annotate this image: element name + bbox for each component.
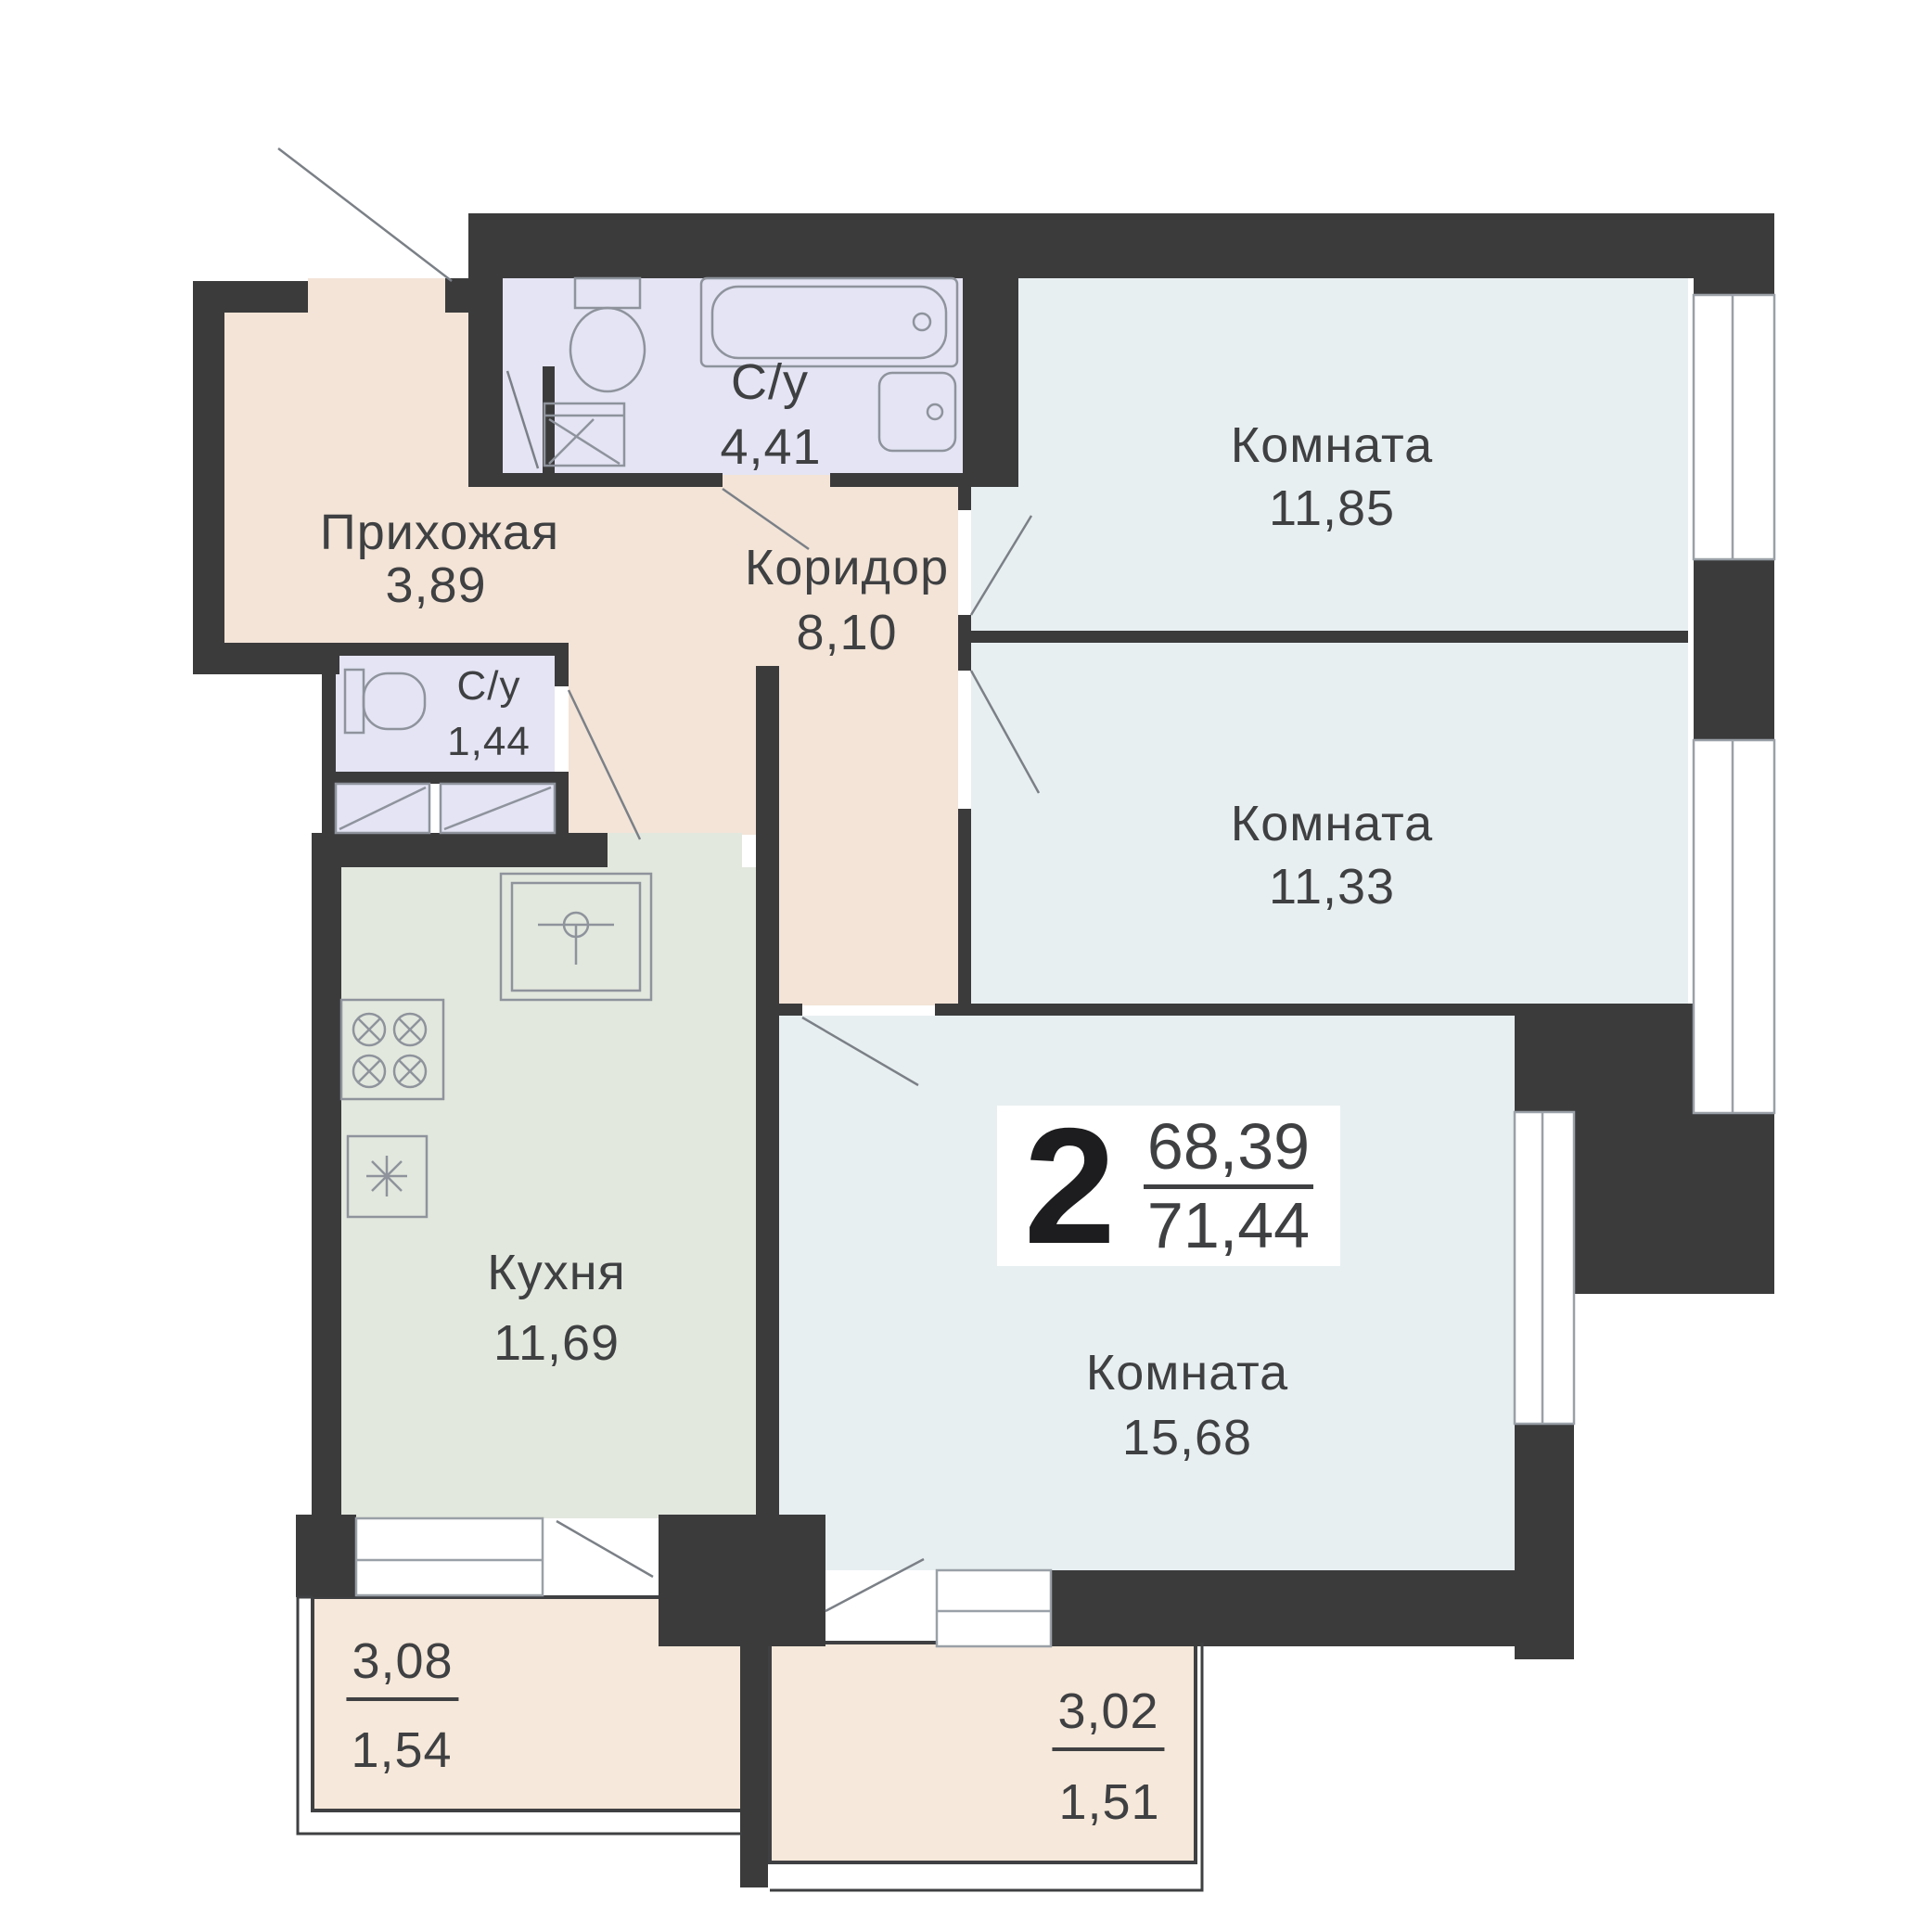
window-room1 <box>1694 295 1774 559</box>
window-room3-balcony <box>937 1570 1051 1646</box>
wall-room3-right-a <box>1515 1016 1574 1112</box>
corridor-area: 8,10 <box>796 604 897 661</box>
rooms-count: 2 <box>1024 1104 1116 1269</box>
wall-kitchen-top <box>322 833 608 867</box>
apartment-info-box: 2 68,39 71,44 <box>997 1106 1340 1266</box>
total-area: 71,44 <box>1147 1189 1310 1261</box>
wall-left-outer <box>193 281 224 674</box>
wall-bay-pier <box>1694 559 1774 740</box>
room3-name: Комната <box>1086 1344 1288 1401</box>
hallway-name: Прихожая <box>320 504 559 561</box>
kitchen-entrance-fill <box>608 833 742 870</box>
wall-bay-bottom-a <box>1694 1113 1774 1294</box>
balcony-right-reduced: 1,51 <box>1058 1773 1159 1831</box>
room3-area: 15,68 <box>1122 1409 1252 1466</box>
wall-wc-top <box>322 643 569 656</box>
wall-bay-top-corner <box>1694 213 1774 295</box>
balcony-right-area: 3,02 <box>1052 1683 1164 1751</box>
wall-kitchen-bottom-corner <box>296 1515 356 1597</box>
balcony-left-reduced: 1,54 <box>351 1721 452 1779</box>
wall-kitchen-left <box>312 833 341 1521</box>
corridor-name: Коридор <box>745 539 949 596</box>
wall-hall-bottom <box>193 643 339 674</box>
wall-bath-left <box>468 278 503 487</box>
wall-bath-bottom-b <box>830 473 963 487</box>
wall-rooms-left-a <box>958 487 971 510</box>
entrance-opening-fill <box>308 278 447 315</box>
hallway-area: 3,89 <box>385 557 486 614</box>
wall-bath-right <box>963 213 1018 487</box>
bathroom-name: С/у <box>731 353 809 411</box>
kitchen-fill <box>341 867 756 1518</box>
area-fraction: 68,39 71,44 <box>1144 1110 1313 1262</box>
floor-plan-drawing <box>0 0 1932 1932</box>
balcony-left-area: 3,08 <box>346 1632 458 1701</box>
corridor-fill-lower <box>779 666 958 1005</box>
room2-name: Комната <box>1231 795 1433 852</box>
entrance-door-leaf <box>278 148 452 281</box>
kitchen-area: 11,69 <box>493 1314 620 1372</box>
kitchen-name: Кухня <box>487 1244 626 1301</box>
wall-rooms-left-b <box>958 809 971 1016</box>
bathroom-area: 4,41 <box>720 418 821 476</box>
wc-area: 1,44 <box>447 719 531 765</box>
wall-bay-bottom-b <box>1574 1016 1694 1294</box>
room3-fill <box>779 1016 1515 1570</box>
room1-area: 11,85 <box>1269 480 1395 537</box>
wall-corridor-stub-l <box>779 1004 802 1016</box>
wall-room1-room2 <box>971 631 1688 643</box>
living-area: 68,39 <box>1144 1110 1313 1189</box>
kitchen-balcony-door-leaf <box>557 1521 653 1577</box>
window-room2 <box>1694 740 1774 1113</box>
wall-corridor-kitchen <box>756 666 779 1518</box>
wall-wc-right-a <box>555 643 569 686</box>
window-kitchen <box>356 1518 543 1595</box>
wall-balcony-separator <box>740 1597 768 1887</box>
window-room3 <box>1515 1112 1574 1424</box>
wall-room2-bottom <box>971 1004 1774 1016</box>
room1-name: Комната <box>1231 416 1433 474</box>
wall-bath-bottom-a <box>503 473 723 487</box>
wall-top <box>468 213 1774 278</box>
wall-rooms-left-stub <box>958 615 971 671</box>
wc-name: С/у <box>457 663 521 710</box>
wall-room3-bottom <box>1051 1570 1574 1646</box>
wall-wc-bottom <box>322 772 569 784</box>
wall-corridor-stub-r <box>935 1004 958 1016</box>
floor-plan: Прихожая 3,89 С/у 4,41 Коридор 8,10 Комн… <box>0 0 1932 1932</box>
room2-area: 11,33 <box>1269 858 1395 915</box>
